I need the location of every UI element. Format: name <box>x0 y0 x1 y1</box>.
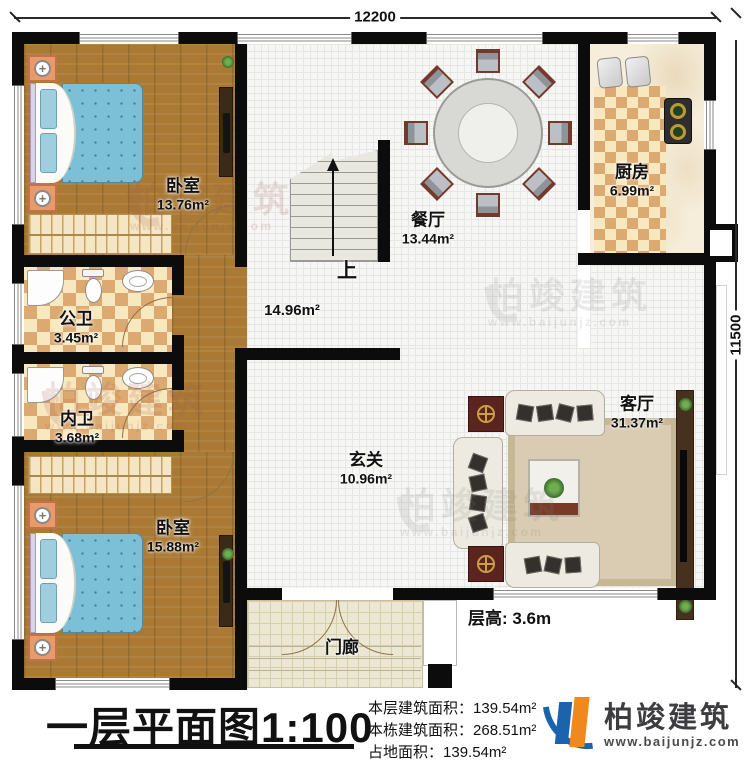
nightstand: + <box>28 634 57 661</box>
desk-with-monitor <box>219 87 233 177</box>
plant-icon <box>222 548 234 560</box>
wall-segment <box>12 32 24 85</box>
stat-row: 本层建筑面积：139.54m² <box>368 698 536 720</box>
brand-url: www.baijunjz.com <box>604 734 740 749</box>
window <box>12 283 24 345</box>
wall-segment <box>172 255 184 295</box>
wall-segment <box>235 348 247 690</box>
dining-chair <box>548 121 572 145</box>
sofa-top <box>505 390 605 436</box>
toilet <box>82 366 104 374</box>
sofa-bottom <box>505 542 600 588</box>
plant-icon <box>222 56 234 68</box>
toilet-bowl <box>85 278 102 303</box>
wall-segment <box>247 588 282 600</box>
title-underline <box>74 744 354 749</box>
window <box>12 485 24 640</box>
window <box>79 32 179 44</box>
room-label-private-bath: 内卫3.68m² <box>55 409 99 446</box>
room-label-dining: 餐厅13.44m² <box>402 210 454 247</box>
window <box>55 678 170 690</box>
bed-pillow <box>40 89 57 129</box>
wall-segment <box>12 225 24 283</box>
plant-icon <box>679 600 692 613</box>
wall-segment <box>12 678 55 690</box>
wall-segment <box>578 253 704 265</box>
room-label-public-bath: 公卫3.45m² <box>54 309 98 346</box>
wall-segment <box>172 335 184 390</box>
nightstand: + <box>28 55 57 82</box>
burner-icon <box>670 103 686 119</box>
wall-segment <box>578 44 590 210</box>
window <box>627 32 679 44</box>
area-statistics: 本层建筑面积：139.54m² 本栋建筑面积：268.51m² 占地面积：139… <box>368 698 536 763</box>
window <box>12 373 24 437</box>
wall-segment <box>658 588 716 600</box>
window <box>493 588 658 600</box>
plant-icon <box>544 478 564 498</box>
coffee-table-edge <box>530 503 578 515</box>
wall-segment <box>393 588 430 600</box>
wall-segment <box>235 44 247 267</box>
window <box>704 100 716 150</box>
burner-icon <box>670 124 686 140</box>
wash-basin <box>122 270 154 292</box>
side-table-compass <box>468 546 504 582</box>
wall-segment <box>12 255 172 267</box>
dimension-line-right <box>735 40 737 688</box>
room-label-bedroom-bl: 卧室15.88m² <box>147 518 199 555</box>
porch-column <box>428 664 452 688</box>
plant-icon <box>679 398 692 411</box>
wall-segment <box>12 352 172 364</box>
wall-segment <box>543 32 627 44</box>
room-label-hall-area: 14.96m² <box>264 302 320 320</box>
dimension-tick <box>730 7 741 18</box>
stat-row: 本栋建筑面积：268.51m² <box>368 720 536 742</box>
nightstand: + <box>28 501 57 529</box>
stairs-arrow-line <box>332 170 334 256</box>
toilet-bowl <box>85 375 102 400</box>
dimension-height: 11500 <box>728 311 745 360</box>
sink-basin <box>596 57 623 89</box>
tv-screen <box>680 450 687 562</box>
floor-height-note: 层高: 3.6m <box>468 604 551 629</box>
coffee-table <box>528 459 580 517</box>
window <box>12 85 24 225</box>
brand-logo: 柏竣建筑 www.baijunjz.com <box>548 696 740 756</box>
terrace-outline <box>716 285 727 475</box>
wash-basin <box>122 367 154 389</box>
stairs-direction-label: 上 <box>337 259 357 283</box>
stairs-arrow-head <box>327 158 339 171</box>
dining-table-center <box>458 103 518 163</box>
stat-row: 占地面积：139.54m² <box>368 742 536 764</box>
room-label-bedroom-tl: 卧室13.76m² <box>157 176 209 213</box>
brand-logo-icon <box>548 696 596 756</box>
window <box>237 32 352 44</box>
bay-window <box>710 230 732 256</box>
toilet <box>82 269 104 277</box>
bed-pillow <box>40 539 57 579</box>
sofa-left <box>453 437 503 549</box>
wall-segment <box>704 32 716 100</box>
wall-segment <box>430 588 493 600</box>
nightstand: + <box>28 184 57 212</box>
dining-chair <box>476 49 500 73</box>
bed-pillow <box>40 583 57 623</box>
hall-floor-right <box>590 265 704 360</box>
wall-segment <box>179 32 237 44</box>
dining-chair <box>476 193 500 217</box>
porch-platform <box>423 600 457 666</box>
room-label-living: 客厅31.37m² <box>611 394 663 431</box>
room-label-foyer: 玄关10.96m² <box>340 450 392 487</box>
wall-segment <box>704 150 716 224</box>
wall-segment <box>352 32 426 44</box>
wall-segment <box>704 262 716 588</box>
floor-plan-page: + + + + 上 <box>0 0 750 767</box>
wardrobe <box>28 214 172 254</box>
stove <box>664 98 692 144</box>
window <box>426 32 543 44</box>
room-label-kitchen: 厨房6.99m² <box>610 162 654 199</box>
wardrobe <box>28 456 172 494</box>
porch-step-line <box>249 670 421 671</box>
room-label-porch: 门廊 <box>325 638 359 658</box>
kitchen-sink <box>596 53 655 93</box>
side-table-compass <box>468 396 504 432</box>
wall-segment <box>378 140 390 262</box>
dimension-width: 12200 <box>350 9 400 26</box>
bed-pillow <box>40 133 57 173</box>
brand-name: 柏竣建筑 <box>604 703 740 733</box>
dining-chair <box>404 121 428 145</box>
wall-segment <box>247 348 400 360</box>
sink-basin <box>624 56 651 88</box>
